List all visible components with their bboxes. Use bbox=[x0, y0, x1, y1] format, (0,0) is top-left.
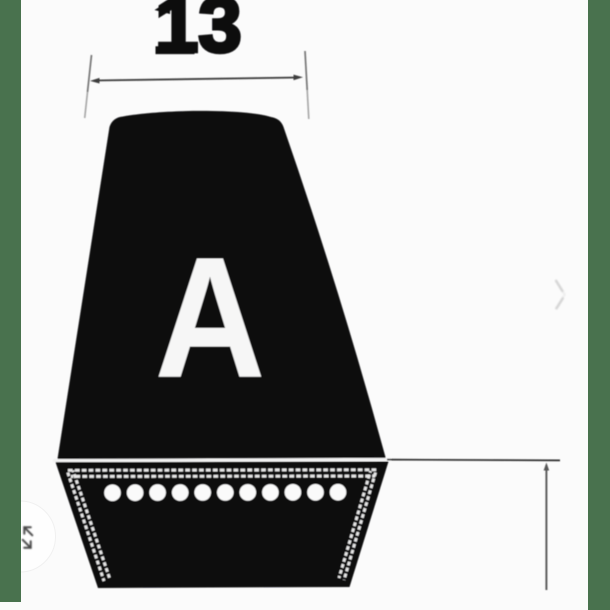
svg-text:A: A bbox=[155, 222, 266, 414]
